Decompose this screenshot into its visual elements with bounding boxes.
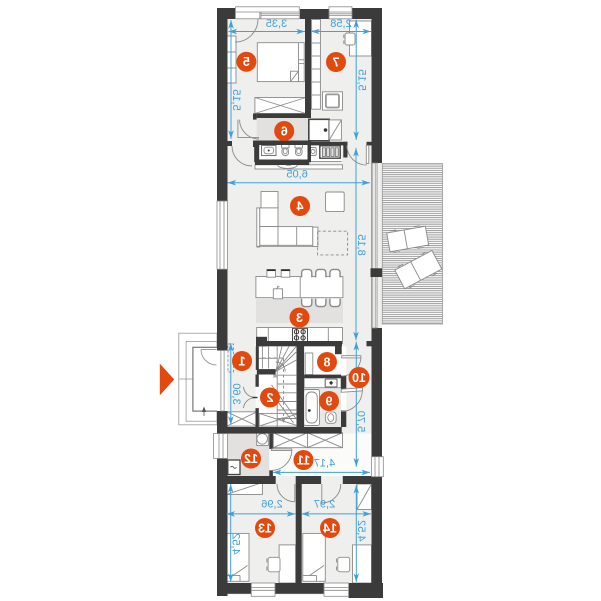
svg-text:4,52: 4,52 <box>230 533 242 554</box>
svg-text:5,15: 5,15 <box>230 89 242 110</box>
svg-text:2,96: 2,96 <box>261 499 282 511</box>
svg-text:2: 2 <box>266 391 273 405</box>
svg-text:9: 9 <box>325 395 332 409</box>
svg-text:4: 4 <box>296 200 303 214</box>
svg-text:2,58: 2,58 <box>330 18 351 30</box>
svg-text:3,60: 3,60 <box>230 383 242 404</box>
svg-text:4,17: 4,17 <box>314 458 335 470</box>
svg-text:3,35: 3,35 <box>266 18 287 30</box>
svg-text:11: 11 <box>297 454 310 468</box>
svg-text:3: 3 <box>296 311 303 325</box>
svg-text:10: 10 <box>352 371 366 385</box>
svg-text:5,70: 5,70 <box>355 411 367 432</box>
svg-text:8: 8 <box>323 356 330 370</box>
svg-text:1: 1 <box>238 355 245 369</box>
svg-text:14: 14 <box>323 522 337 536</box>
svg-text:4,52: 4,52 <box>355 520 367 541</box>
svg-text:5: 5 <box>243 55 250 69</box>
svg-text:7: 7 <box>332 56 339 70</box>
svg-text:13: 13 <box>258 522 272 536</box>
svg-text:8,15: 8,15 <box>355 234 367 255</box>
svg-text:5,15: 5,15 <box>355 69 367 90</box>
svg-text:6,05: 6,05 <box>286 168 307 180</box>
svg-text:6: 6 <box>281 125 288 139</box>
svg-text:2,97: 2,97 <box>314 499 335 511</box>
svg-text:12: 12 <box>244 452 258 466</box>
